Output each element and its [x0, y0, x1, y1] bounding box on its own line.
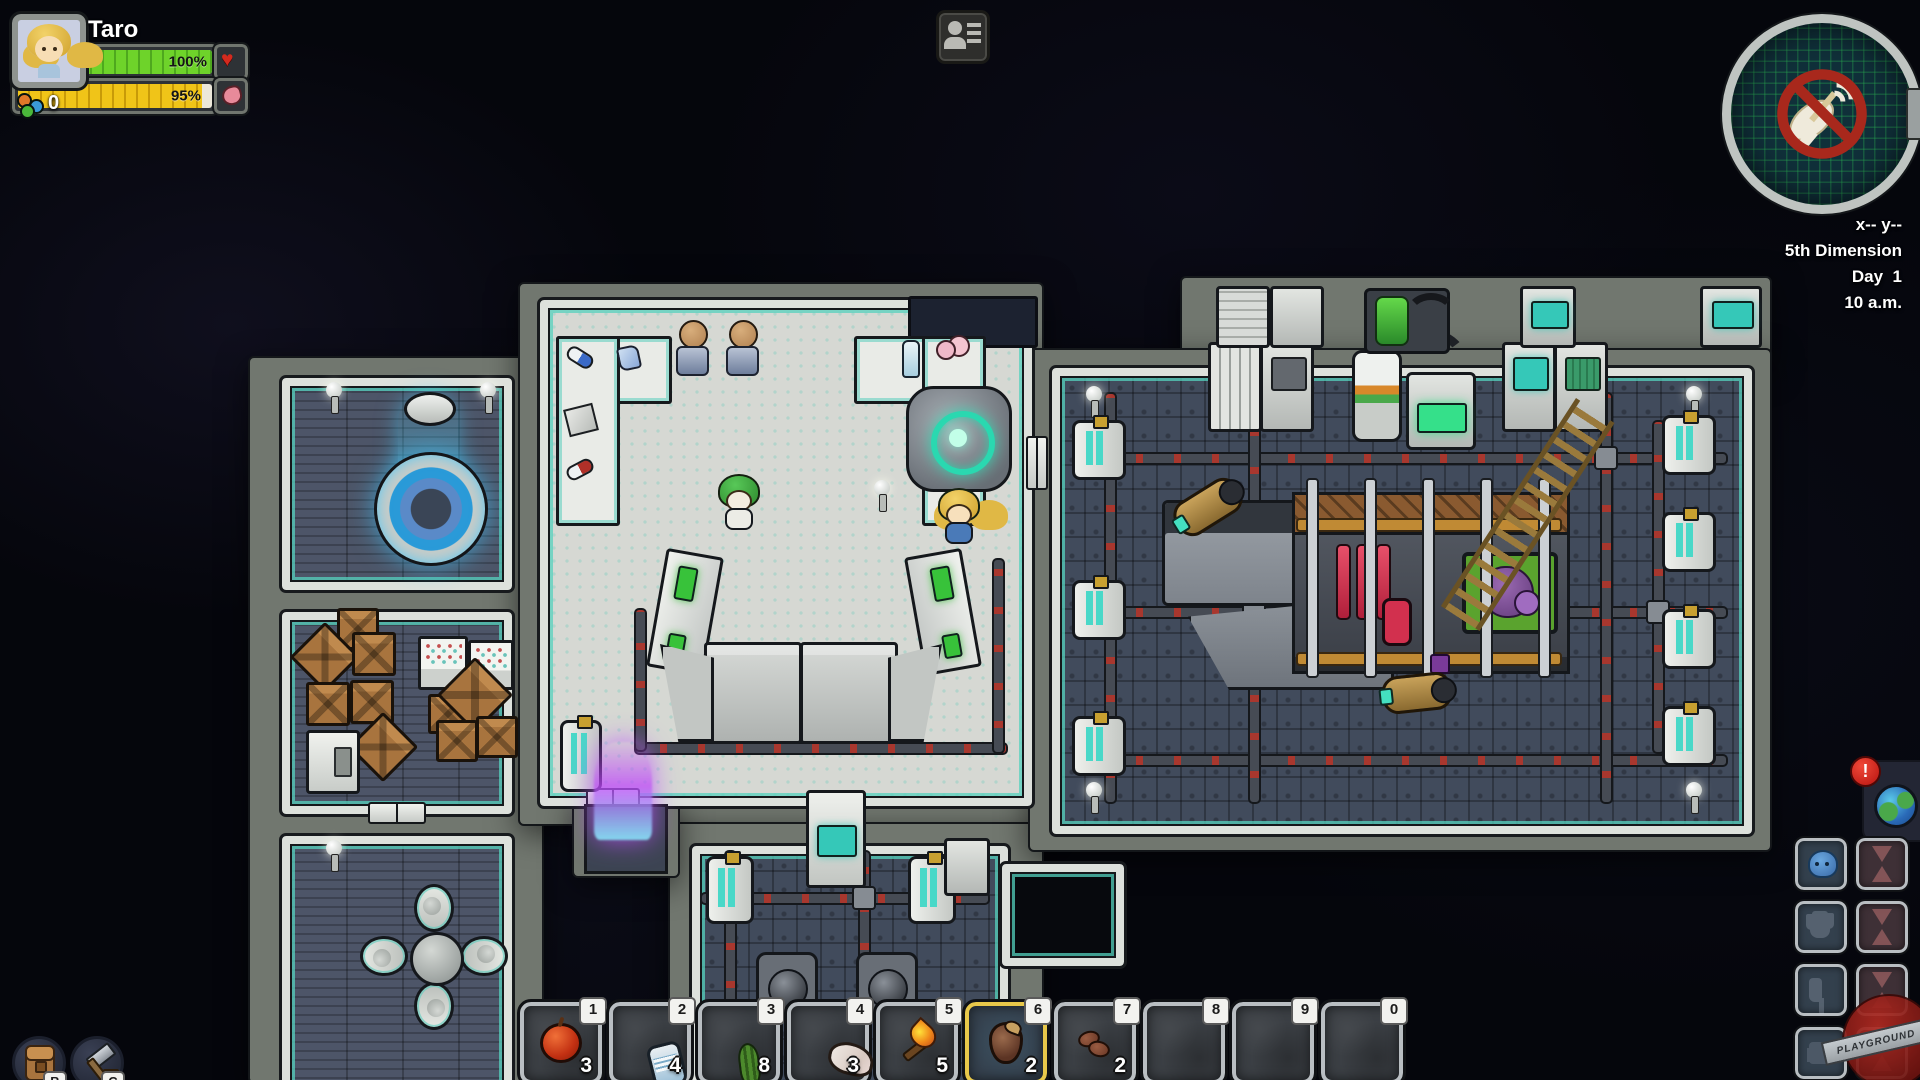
bottle-item[interactable] [902, 340, 920, 378]
generator-unit[interactable] [706, 856, 754, 924]
egg-chair[interactable] [414, 884, 454, 932]
alien-blob-small [1514, 590, 1540, 616]
cargo-crate[interactable] [436, 720, 478, 762]
slot-key: 5 [935, 997, 963, 1025]
slot-count: 3 [580, 1054, 592, 1078]
equip-slot-helmet[interactable] [1795, 838, 1847, 890]
screen-machine[interactable] [1502, 342, 1556, 432]
small-machine[interactable] [944, 838, 990, 896]
cargo-crate[interactable] [306, 682, 350, 726]
hull-machine[interactable] [1216, 286, 1270, 348]
stomach-icon [220, 84, 244, 107]
generator-unit[interactable] [1072, 420, 1126, 480]
generator-unit[interactable] [1662, 415, 1716, 475]
cargo-crate[interactable] [476, 716, 518, 758]
pipe [634, 608, 647, 752]
torch-icon [897, 1021, 937, 1065]
portrait-body [38, 64, 60, 78]
oxygen-screen [1417, 403, 1467, 433]
slot-count: 3 [847, 1054, 859, 1078]
slot-key: 6 [1024, 997, 1052, 1025]
generator-unit[interactable] [1662, 706, 1716, 766]
pipe [992, 558, 1005, 754]
console-screen [673, 565, 699, 602]
pipe [1072, 754, 1728, 767]
crew-roster-icon [939, 13, 987, 61]
console-screen [941, 633, 963, 660]
ball-lamp[interactable] [1086, 782, 1102, 798]
hull-machine[interactable] [1270, 286, 1324, 348]
torpedo-tip [1378, 688, 1394, 706]
player-panel: 100% ♥ 95% Taro 0 [0, 0, 260, 120]
gloves-icon [1810, 916, 1830, 938]
quickbar-slot-3[interactable]: 3 8 [698, 1002, 780, 1080]
slot-count: 2 [1114, 1054, 1126, 1078]
heart-icon: ♥ [221, 48, 233, 72]
armor-stand[interactable] [726, 320, 758, 376]
armor-stand[interactable] [676, 320, 708, 376]
coolant-machine[interactable] [1364, 288, 1450, 354]
equip-slot-gloves[interactable] [1795, 901, 1847, 953]
boots-icon [1809, 978, 1822, 1002]
pink-pills-item[interactable] [936, 340, 956, 360]
slot-key: 3 [757, 997, 785, 1025]
slot-key: 8 [1202, 997, 1230, 1025]
mood-dots-icon [16, 92, 46, 118]
seed-icon [989, 1022, 1023, 1064]
dining-table[interactable] [410, 932, 464, 986]
egg-chair[interactable] [414, 982, 454, 1030]
dimension-label: 5th Dimension [1600, 238, 1902, 264]
quickbar-slot-7[interactable]: 7 2 [1054, 1002, 1136, 1080]
teal-screen [1531, 301, 1569, 329]
generator-unit[interactable] [1072, 716, 1126, 776]
quickbar-slot-0[interactable]: 0 [1321, 1002, 1403, 1080]
canned-food-icon [645, 1040, 689, 1080]
void-pit [1002, 864, 1124, 966]
player-name: Taro [88, 16, 138, 44]
slot-count: 4 [669, 1054, 681, 1078]
beans-icon [1078, 1029, 1112, 1057]
ball-lamp[interactable] [326, 382, 342, 398]
console-screen [929, 565, 955, 602]
portrait-face [35, 36, 63, 62]
pipe [1072, 452, 1728, 465]
oxygen-generator[interactable] [1406, 372, 1476, 450]
engine-piston [1336, 544, 1351, 620]
scanner-core [949, 429, 967, 447]
cargo-crate[interactable] [352, 632, 396, 676]
gray-screen [1271, 357, 1307, 391]
mood-count: 0 [48, 92, 59, 115]
slot-count: 5 [936, 1054, 948, 1078]
quickbar-slot-5[interactable]: 5 5 [876, 1002, 958, 1080]
pipe [634, 742, 1008, 755]
generator-unit[interactable] [1662, 609, 1716, 669]
screen-machine[interactable] [1260, 342, 1314, 432]
quickbar-slot-8[interactable]: 8 [1143, 1002, 1225, 1080]
engine-nozzle [1382, 598, 1412, 646]
minimap-side-tab[interactable] [1906, 88, 1920, 140]
slot-key: 1 [579, 997, 607, 1025]
game-viewport: 100% ♥ 95% Taro 0 [0, 0, 1920, 1080]
no-satellite-signal-icon [1772, 64, 1872, 164]
crew-green-haired[interactable] [716, 474, 758, 532]
portrait-eyes [42, 47, 46, 51]
crew-roster-button[interactable] [936, 10, 990, 64]
body [725, 508, 753, 530]
engine-pillar [1364, 478, 1377, 678]
time-label: 10 a.m. [1600, 290, 1902, 316]
storage-lounge-door[interactable] [368, 802, 426, 824]
slot-key: 4 [846, 997, 874, 1025]
ball-lamp[interactable] [874, 480, 890, 496]
slot-key: 9 [1291, 997, 1319, 1025]
ball-lamp[interactable] [1686, 386, 1702, 402]
inventory-key-badge: B [43, 1071, 67, 1080]
health-bar-frame: 100% [74, 44, 218, 80]
slot-key: 2 [668, 997, 696, 1025]
console-deck[interactable] [800, 642, 898, 744]
quickbar-slot-2[interactable]: 2 4 [609, 1002, 691, 1080]
quickbar-slot-9[interactable]: 9 [1232, 1002, 1314, 1080]
airlock-console[interactable] [806, 790, 866, 888]
pipe-junction [1594, 446, 1618, 470]
alert-exclamation: ! [1863, 761, 1869, 781]
lab-engine-door[interactable] [1026, 436, 1048, 490]
equip-slot-boots[interactable] [1795, 964, 1847, 1016]
heart-box: ♥ [214, 44, 248, 80]
ball-lamp[interactable] [1086, 386, 1102, 402]
engine-pillar [1422, 478, 1435, 678]
green-grid-screen [1565, 357, 1601, 391]
helmet-icon [1808, 850, 1838, 878]
station-map [0, 0, 1920, 1080]
green-cylinder [1375, 296, 1409, 346]
stomach-box [214, 78, 248, 114]
fridge-panel [334, 747, 352, 777]
teleporter-emitter [404, 392, 456, 426]
timer-slot-gloves[interactable] [1856, 901, 1908, 953]
egg-chair[interactable] [460, 936, 508, 976]
ball-lamp[interactable] [326, 840, 342, 856]
status-readout: x-- y-- 5th Dimension Day 1 10 a.m. [1600, 212, 1902, 316]
egg-chair[interactable] [360, 936, 408, 976]
crew-taro-blonde[interactable] [936, 488, 978, 546]
alert-badge: ! [1850, 756, 1881, 787]
quickbar-slot-4[interactable]: 4 3 [787, 1002, 869, 1080]
timer-slot-helmet[interactable] [1856, 838, 1908, 890]
portrait-frame[interactable] [12, 14, 86, 88]
control-panel-machine[interactable] [1208, 342, 1262, 432]
engine-pillar [1306, 478, 1319, 678]
health-value: 100% [169, 54, 207, 71]
purple-box [1430, 654, 1450, 674]
teal-screen [1513, 357, 1549, 391]
console-deck[interactable] [704, 642, 802, 744]
planet-icon [1874, 784, 1918, 828]
minimap[interactable] [1722, 14, 1920, 214]
coords-label: x-- y-- [1600, 212, 1902, 238]
hose [1405, 293, 1457, 337]
hull-machine[interactable] [1520, 286, 1576, 348]
world-button[interactable]: ! [1862, 760, 1920, 842]
generator-unit[interactable] [1662, 512, 1716, 572]
body [945, 522, 973, 544]
apple-icon [540, 1023, 582, 1063]
slot-count: 8 [758, 1054, 770, 1078]
body-scanner[interactable] [906, 386, 1012, 492]
purple-plasma-fire[interactable] [594, 742, 652, 840]
pipe-junction [852, 886, 876, 910]
ball-lamp[interactable] [480, 382, 496, 398]
slot-key: 0 [1380, 997, 1408, 1025]
teleporter-pad[interactable] [374, 452, 488, 566]
slot-key: 7 [1113, 997, 1141, 1025]
generator-unit[interactable] [1072, 580, 1126, 640]
quickbar-slot-6-selected[interactable]: 6 2 [965, 1002, 1047, 1080]
quickbar-slot-1[interactable]: 1 3 [520, 1002, 602, 1080]
hunger-value: 95% [171, 88, 201, 105]
ball-lamp[interactable] [1686, 782, 1702, 798]
day-label: Day 1 [1600, 264, 1902, 290]
crafting-key-badge: C [101, 1071, 125, 1080]
refrigerator[interactable] [306, 730, 360, 794]
console-screen [817, 825, 857, 857]
slot-count: 2 [1025, 1054, 1037, 1078]
